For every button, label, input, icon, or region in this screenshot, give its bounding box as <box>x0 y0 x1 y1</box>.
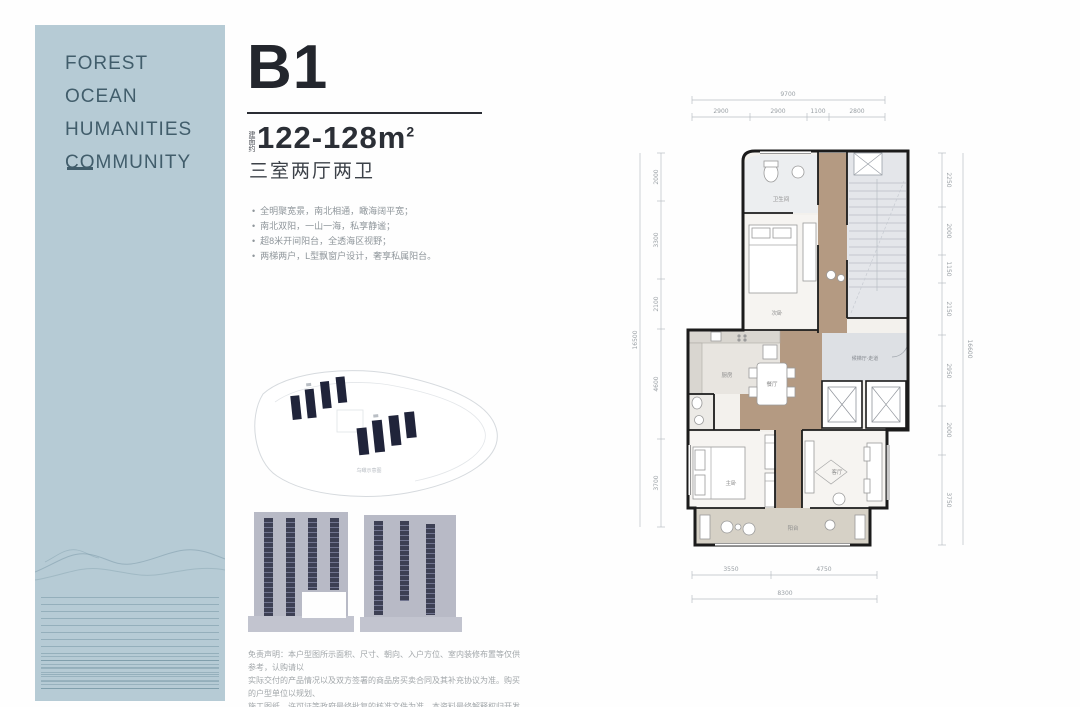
dim-bottom-total: 8300 <box>777 590 792 597</box>
window-band <box>286 518 295 616</box>
plant-icon <box>825 520 835 530</box>
feature-item: 两梯两户，L型飘窗户设计，奢享私属阳台。 <box>252 249 512 264</box>
desk-icon <box>803 223 816 281</box>
feature-list: 全明聚宽景，南北相通，瞰海阔平宽； 南北双阳，一山一海，私享静谧； 超8米开间阳… <box>252 204 512 264</box>
window-band <box>264 518 273 616</box>
dim-top-seg: 2900 <box>770 108 785 115</box>
planter-icon <box>700 515 710 539</box>
dimension-chain-bottom: 3550 4750 8300 <box>692 566 877 603</box>
dim-bottom-seg: 3550 <box>723 566 738 573</box>
site-plan-illustration: 鸟瞰示意图 <box>245 362 507 514</box>
area-prefix-label: 建面约 <box>247 131 255 156</box>
bedroom-passage-floor <box>775 430 802 508</box>
dim-left-seg: 2000 <box>653 169 660 184</box>
window-band <box>330 518 339 590</box>
dim-right-seg: 1150 <box>945 261 952 276</box>
dim-right-seg: 2000 <box>945 422 952 437</box>
toilet-icon <box>692 397 702 409</box>
entry-corridor-floor <box>818 153 847 333</box>
mountain-illustration <box>35 514 225 589</box>
unit-title: B1 <box>247 32 328 103</box>
master-bedroom: 主卧 <box>690 432 776 508</box>
room-label-hall: 候梯厅·走道 <box>852 355 879 362</box>
brand-sidebar: FOREST OCEAN HUMANITIES COMMUNITY <box>35 25 225 701</box>
feature-item: 超8米开间阳台，全透海区视野； <box>252 234 512 249</box>
dim-top-seg: 2800 <box>849 108 864 115</box>
planter-icon <box>855 515 865 539</box>
dim-bottom-seg: 4750 <box>816 566 831 573</box>
dim-left-seg: 2100 <box>653 296 660 311</box>
brand-slogan-line1: FOREST OCEAN <box>65 47 225 113</box>
sink-icon <box>695 416 704 425</box>
area-superscript: 2 <box>406 124 415 140</box>
dim-left-seg: 3700 <box>653 475 660 490</box>
kitchen-sink-icon <box>711 332 721 341</box>
layout-type-label: 三室两厅两卫 <box>249 156 375 183</box>
dimension-chain-top: 9700 2900 2900 1100 2800 <box>692 91 885 121</box>
room-label-bedroom2: 次卧 <box>771 309 783 317</box>
dim-right-total: 16600 <box>966 339 973 358</box>
slogan-dash <box>67 167 93 170</box>
balcony-chair-icon <box>721 521 733 533</box>
vanity-basin-icon <box>838 275 845 282</box>
site-plan-caption: 鸟瞰示意图 <box>356 467 381 474</box>
elevator-hall: 候梯厅·走道 <box>822 333 908 381</box>
dim-right-seg: 3750 <box>945 492 952 507</box>
bathroom-mid <box>688 394 714 430</box>
dimension-chain-right: 2250 2000 1150 2150 2950 2000 3750 16600 <box>938 153 973 545</box>
balcony: 阳台 <box>695 508 870 545</box>
dim-right-seg: 2250 <box>945 172 952 187</box>
feature-item: 南北双阳，一山一海，私享静谧； <box>252 219 512 234</box>
floor-plan: 9700 2900 2900 1100 2800 16500 2000 3300 <box>615 75 985 635</box>
elevation-tower-a-base <box>248 616 354 632</box>
balcony-table-icon <box>735 524 741 530</box>
dim-left-total: 16500 <box>632 330 639 349</box>
living-room: 客厅 <box>802 432 887 508</box>
room-label-dining: 餐厅 <box>766 380 778 388</box>
elevator-shaft <box>822 381 862 428</box>
window-band <box>400 521 409 601</box>
disclaimer-line: 免责声明：本户型图所示面积、尺寸、朝向、入户方位、室内装修布置等仅供参考，认购请… <box>248 648 524 674</box>
water-lines-dense-pattern <box>41 653 219 691</box>
elevation-illustration <box>250 508 502 640</box>
bedroom-2: 次卧 <box>745 215 818 328</box>
fridge-icon <box>763 345 777 359</box>
dim-right-seg: 2000 <box>945 223 952 238</box>
bathroom-top: 卫生间 <box>743 155 818 213</box>
balcony-chair-icon <box>743 523 755 535</box>
brand-slogan-line2: HUMANITIES <box>65 113 225 146</box>
elevation-tower-b-base <box>360 617 462 632</box>
brand-slogan-line3: COMMUNITY <box>65 146 225 179</box>
dim-top-seg: 2900 <box>713 108 728 115</box>
sink-icon <box>792 166 804 178</box>
room-label-bath: 卫生间 <box>773 195 790 203</box>
area-row: 建面约 122-128m2 <box>247 120 431 156</box>
dim-top-seg: 1100 <box>810 108 825 115</box>
elevation-tower-a-notch <box>302 592 346 618</box>
room-label-kitchen: 厨房 <box>721 371 733 379</box>
stair-core <box>847 151 908 318</box>
room-label-master: 主卧 <box>725 479 737 487</box>
tv-cabinet-icon <box>805 441 814 493</box>
area-value: 122-128m2 <box>257 120 415 156</box>
dim-top-total: 9700 <box>780 91 795 98</box>
elevator-shaft <box>866 381 906 428</box>
dim-right-seg: 2950 <box>945 363 952 378</box>
brochure-page: FOREST OCEAN HUMANITIES COMMUNITY B1 建面约… <box>0 0 1080 707</box>
feature-item: 全明聚宽景，南北相通，瞰海阔平宽； <box>252 204 512 219</box>
area-number: 122-128m <box>257 120 406 155</box>
vanity-basin-icon <box>827 271 836 280</box>
dim-right-seg: 2150 <box>945 301 952 316</box>
dim-left-seg: 3300 <box>653 232 660 247</box>
room-label-living: 客厅 <box>831 468 843 476</box>
dim-left-seg: 4600 <box>653 376 660 391</box>
brand-slogan: FOREST OCEAN HUMANITIES COMMUNITY <box>65 47 225 179</box>
window-band <box>308 518 317 590</box>
room-label-balcony: 阳台 <box>787 524 799 532</box>
title-underline <box>247 112 482 114</box>
window-band <box>426 524 435 615</box>
dimension-chain-left: 16500 2000 3300 2100 4600 3700 <box>632 153 665 527</box>
disclaimer-text: 免责声明：本户型图所示面积、尺寸、朝向、入户方位、室内装修布置等仅供参考，认购请… <box>248 648 524 707</box>
window-band <box>374 521 383 615</box>
disclaimer-line: 实际交付的产品情况以及双方签署的商品房买卖合同及其补充协议为准。购买的户型单位以… <box>248 674 524 700</box>
armchair-icon <box>833 493 845 505</box>
disclaimer-line: 施工图纸、许可证等政府最终批复的核准文件为准，本资料最终解释权归开发商所有。 <box>248 700 524 707</box>
